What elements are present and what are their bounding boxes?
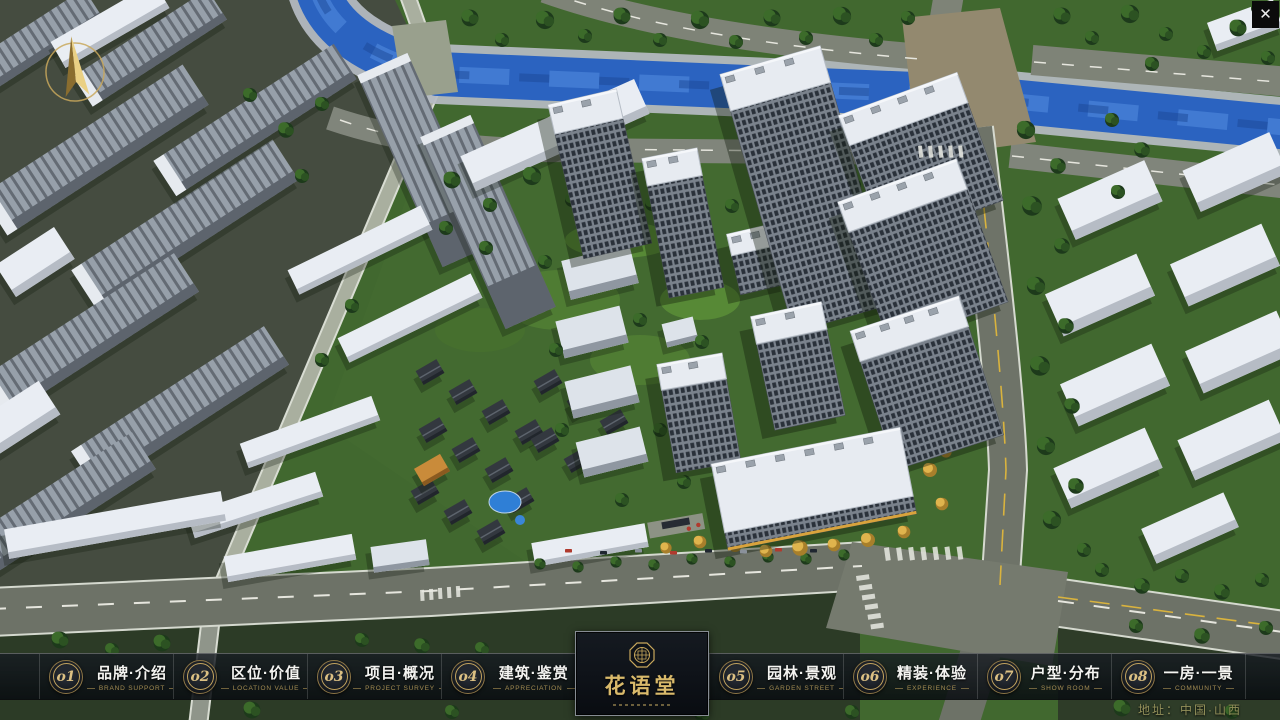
nav-label-en: LOCATION VALUE <box>221 685 307 692</box>
pool <box>489 491 521 513</box>
nav-label-cn: 项目·概况 <box>365 662 435 683</box>
nav-label-en: EXPERIENCE <box>895 685 969 692</box>
nav-label-cn: 精装·体验 <box>897 662 967 683</box>
nav-label-en: PROJECT SURVEY <box>353 685 441 692</box>
nav-label-cn: 品牌·介绍 <box>97 662 167 683</box>
nav-item-location-value[interactable]: o2 区位·价值 LOCATION VALUE <box>173 654 307 699</box>
nav-spacer-left <box>0 654 39 699</box>
nav-label-cn: 区位·价值 <box>231 662 301 683</box>
presentation-screen: ✕ o1 品牌·介绍 BRAND SUPPORT o2 区位·价值 LOCATI… <box>0 0 1280 720</box>
project-logo-panel[interactable]: 花语堂 <box>575 631 709 716</box>
nav-label-en: SHOW ROOM <box>1029 685 1102 692</box>
nav-item-floorplan-distribution[interactable]: o7 户型·分布 SHOW ROOM <box>977 654 1111 699</box>
nav-label-cn: 一房·一景 <box>1164 662 1234 683</box>
address-text: 地址：中国·山西 <box>1138 701 1242 718</box>
nav-label-en: GARDEN STREET <box>757 685 843 692</box>
nav-label-en: COMMUNITY <box>1163 685 1234 692</box>
project-logo-title: 花语堂 <box>605 670 680 700</box>
nav-label-cn: 建筑·鉴赏 <box>499 662 569 683</box>
nav-number-badge: o1 <box>49 660 83 694</box>
nav-item-project-overview[interactable]: o3 项目·概况 PROJECT SURVEY <box>307 654 441 699</box>
nav-number-badge: o4 <box>451 660 485 694</box>
nav-number-badge: o7 <box>987 660 1021 694</box>
site-plan-render <box>0 0 1280 720</box>
logo-subtitle-line <box>613 704 671 706</box>
nav-label-en: APPRECIATION <box>493 685 575 692</box>
nav-label-cn: 园林·景观 <box>767 662 837 683</box>
nav-number-badge: o5 <box>719 660 753 694</box>
nav-number-badge: o2 <box>183 660 217 694</box>
nav-number-badge: o6 <box>853 660 887 694</box>
nav-number-badge: o8 <box>1121 660 1155 694</box>
nav-item-architecture[interactable]: o4 建筑·鉴赏 APPRECIATION <box>441 654 575 699</box>
close-icon: ✕ <box>1259 7 1272 22</box>
nav-item-interior-experience[interactable]: o6 精装·体验 EXPERIENCE <box>843 654 977 699</box>
nav-label-en: BRAND SUPPORT <box>87 685 173 692</box>
nav-item-brand-intro[interactable]: o1 品牌·介绍 BRAND SUPPORT <box>39 654 173 699</box>
nav-item-landscape[interactable]: o5 园林·景观 GARDEN STREET <box>709 654 843 699</box>
project-seal-icon <box>629 642 655 668</box>
nav-spacer-right <box>1245 654 1280 699</box>
close-button[interactable]: ✕ <box>1252 1 1279 28</box>
nav-label-cn: 户型·分布 <box>1031 662 1101 683</box>
nav-number-badge: o3 <box>317 660 351 694</box>
nav-item-one-room-one-view[interactable]: o8 一房·一景 COMMUNITY <box>1111 654 1245 699</box>
